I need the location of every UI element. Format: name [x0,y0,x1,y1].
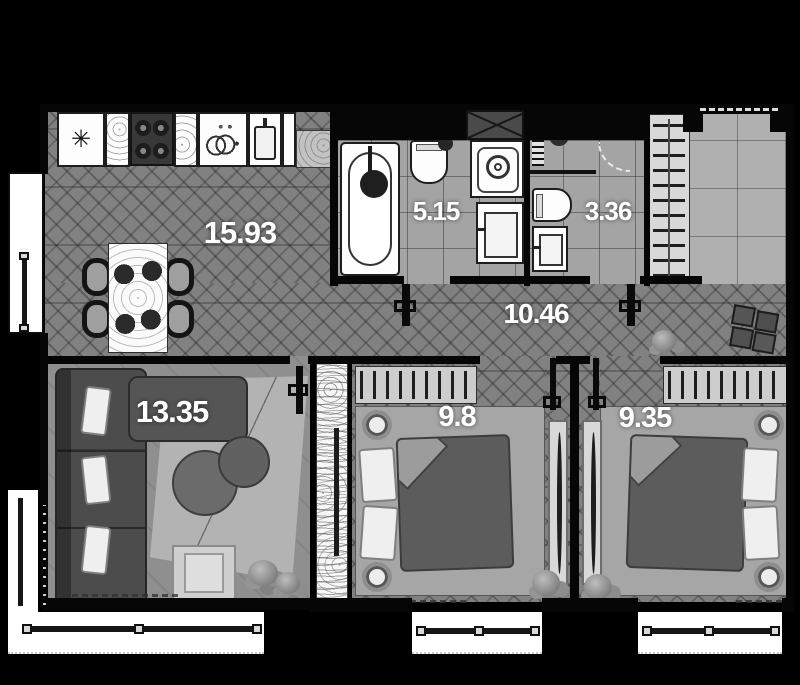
shower-partition [528,170,596,174]
divider-wall [570,356,579,612]
bathroom-area-label: 5.15 [396,198,476,224]
sketch-signature [62,594,180,597]
mirror-glass [557,432,562,574]
mirror-glass [591,432,596,574]
door-handle-icon [288,384,308,396]
bedside-lamp [362,410,392,440]
coffee-table-small [218,436,270,488]
wall [308,356,480,364]
counter-plants [174,112,198,167]
wall [42,104,338,112]
window-node [416,626,426,636]
bed-pillow [359,505,399,561]
bedroom-1-wardrobe [355,366,477,404]
balcony-rail [18,498,23,606]
bedside-lamp [754,410,784,440]
bedroom-2-wardrobe [663,366,788,404]
tv-panel [334,428,339,556]
sketch-signature [736,600,782,603]
wc-toilet [532,188,572,222]
sink-basin [254,126,276,160]
bathroom-vanity [476,202,524,264]
chair [164,258,194,296]
freezer-icon: ✳ [71,125,91,154]
bed-duvet [626,434,749,572]
counter-end [282,112,296,167]
faucet-icon [263,118,267,128]
storage-boxes [726,304,783,358]
bedroom-plant [532,570,560,596]
bedroom-1-area-label: 9.8 [417,403,497,432]
door-handle-icon [394,300,416,312]
wall [332,276,404,284]
kitchen-sink [248,112,282,167]
armchair [172,545,236,603]
kitchen-window [8,172,44,334]
bedside-lamp [362,562,392,592]
vent-shaft [466,110,524,140]
mirror-panel [582,420,602,585]
indoor-plants-strip [316,360,348,602]
box [729,326,754,350]
sofa-pillow [81,525,112,575]
sofa-pillow [81,455,112,505]
window-node [530,626,540,636]
bed-duvet [396,434,515,572]
rail-node [22,624,32,634]
living-room-area-label: 13.35 [126,396,218,427]
window-mullion [22,256,27,332]
bed-pillow [741,447,780,503]
washing-machine [470,140,524,198]
wall [782,598,794,612]
bed-pillow [358,447,398,503]
kitchen-cabinet [105,112,130,167]
wall [42,598,310,610]
bedroom-1-window [412,612,542,654]
kitchen-living-area-label: 15.93 [190,217,290,248]
entry-closet [648,114,690,284]
sketch-signature [410,600,466,603]
wall [330,104,338,286]
hanger-rail-icon [668,371,783,399]
wc-toilet-tank [536,194,543,218]
wc-area-label: 3.36 [568,198,648,224]
bedroom-2-window [638,612,782,654]
wall [450,276,590,284]
closet-rail [668,119,670,279]
hanger-rail-icon [360,371,472,399]
bathtub-faucet-icon [368,146,372,172]
balcony-front [8,612,264,654]
vanity-sink [484,212,518,258]
rail-node [134,624,144,634]
floor-plan: ✳ [0,0,800,685]
wall [524,104,530,286]
window-node [642,626,652,636]
living-plant [276,572,300,594]
wc-sink-basin [539,234,563,266]
wc-sink [532,226,568,272]
fridge: ✳ [57,112,105,167]
dish-rack-icon [198,112,248,167]
box [754,310,779,334]
rail-node [252,624,262,634]
balcony-side [8,490,38,614]
window-node [19,252,29,260]
entry-floor [690,114,788,284]
wall [310,598,412,612]
wall [40,104,48,174]
wall-tick-marks [43,505,46,605]
chair [164,300,194,338]
bedroom-plant [584,574,612,600]
box [752,331,777,355]
wall [660,356,788,364]
bed-pillow [742,505,781,561]
door-handle-icon [543,396,561,408]
bedside-lamp [754,562,784,592]
mirror-panel [548,420,568,585]
bathtub [340,142,400,276]
window-node [770,626,780,636]
entrance-door-dashed [700,108,778,111]
bathtub-drain-icon [360,170,388,198]
washer-spiral-icon [494,163,502,171]
armchair-seat [184,553,224,593]
stove [130,112,174,166]
window-node [19,324,29,332]
vanity-faucet-icon [478,228,486,231]
wall [42,356,290,364]
dining-table [108,243,168,353]
living-plant [248,560,278,586]
wall [644,104,650,286]
box [731,304,756,328]
wc-faucet-icon [534,246,541,249]
wall [542,598,638,612]
door-handle-icon [619,300,641,312]
hallway-plant [652,330,676,352]
window-node [704,626,714,636]
wall [640,276,702,284]
bedroom-2-area-label: 9.35 [600,404,690,433]
hallway-area-label: 10.46 [486,300,586,328]
window-node [474,626,484,636]
